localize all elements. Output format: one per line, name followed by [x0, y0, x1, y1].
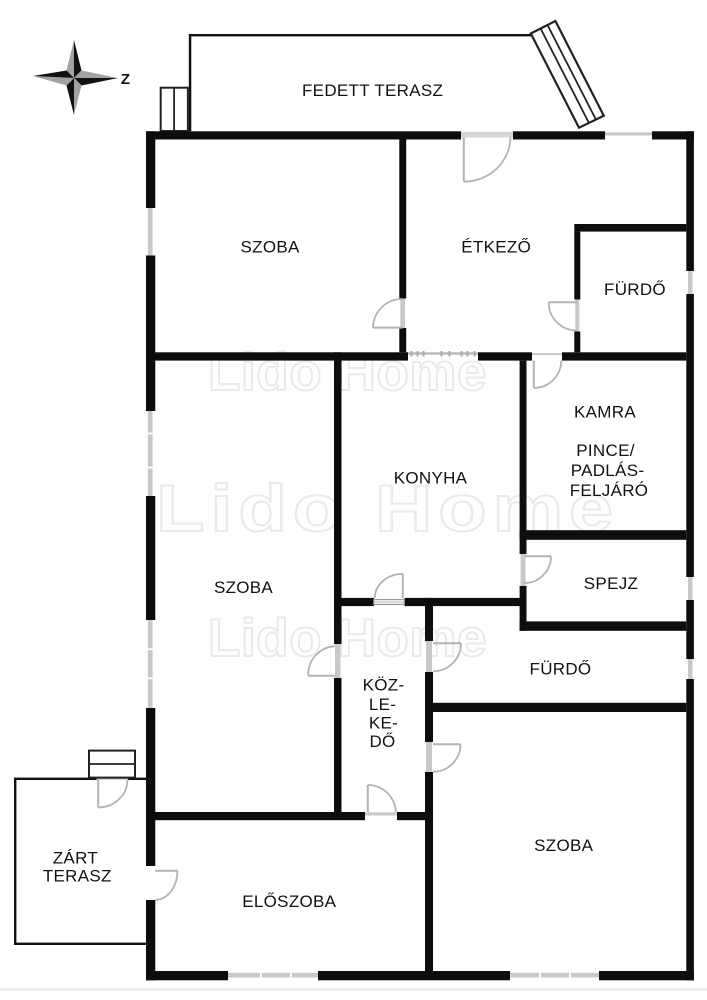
svg-text:ELŐSZOBA: ELŐSZOBA	[242, 892, 336, 911]
svg-text:FELJÁRÓ: FELJÁRÓ	[570, 481, 649, 500]
svg-text:Z: Z	[121, 71, 130, 88]
svg-text:TERASZ: TERASZ	[43, 867, 112, 886]
svg-text:ÉTKEZŐ: ÉTKEZŐ	[461, 238, 531, 257]
svg-text:FÜRDŐ: FÜRDŐ	[604, 280, 666, 299]
svg-text:FEDETT TERASZ: FEDETT TERASZ	[302, 81, 443, 100]
svg-text:Lido Home: Lido Home	[208, 343, 487, 402]
svg-text:PINCE/: PINCE/	[576, 441, 634, 460]
svg-text:FÜRDŐ: FÜRDŐ	[530, 660, 592, 679]
svg-text:KONYHA: KONYHA	[394, 469, 468, 488]
svg-text:LE-: LE-	[369, 695, 396, 714]
svg-text:Lido Home: Lido Home	[208, 609, 487, 668]
svg-text:ZÁRT: ZÁRT	[53, 849, 98, 868]
svg-text:KE-: KE-	[369, 714, 398, 733]
svg-text:KAMRA: KAMRA	[574, 403, 636, 422]
svg-text:SPEJZ: SPEJZ	[584, 574, 638, 593]
svg-text:PADLÁS-: PADLÁS-	[571, 461, 645, 480]
svg-text:SZOBA: SZOBA	[241, 238, 300, 257]
svg-text:DŐ: DŐ	[369, 732, 395, 751]
svg-text:SZOBA: SZOBA	[534, 836, 593, 855]
svg-text:SZOBA: SZOBA	[214, 578, 273, 597]
svg-text:KÖZ-: KÖZ-	[363, 676, 405, 695]
